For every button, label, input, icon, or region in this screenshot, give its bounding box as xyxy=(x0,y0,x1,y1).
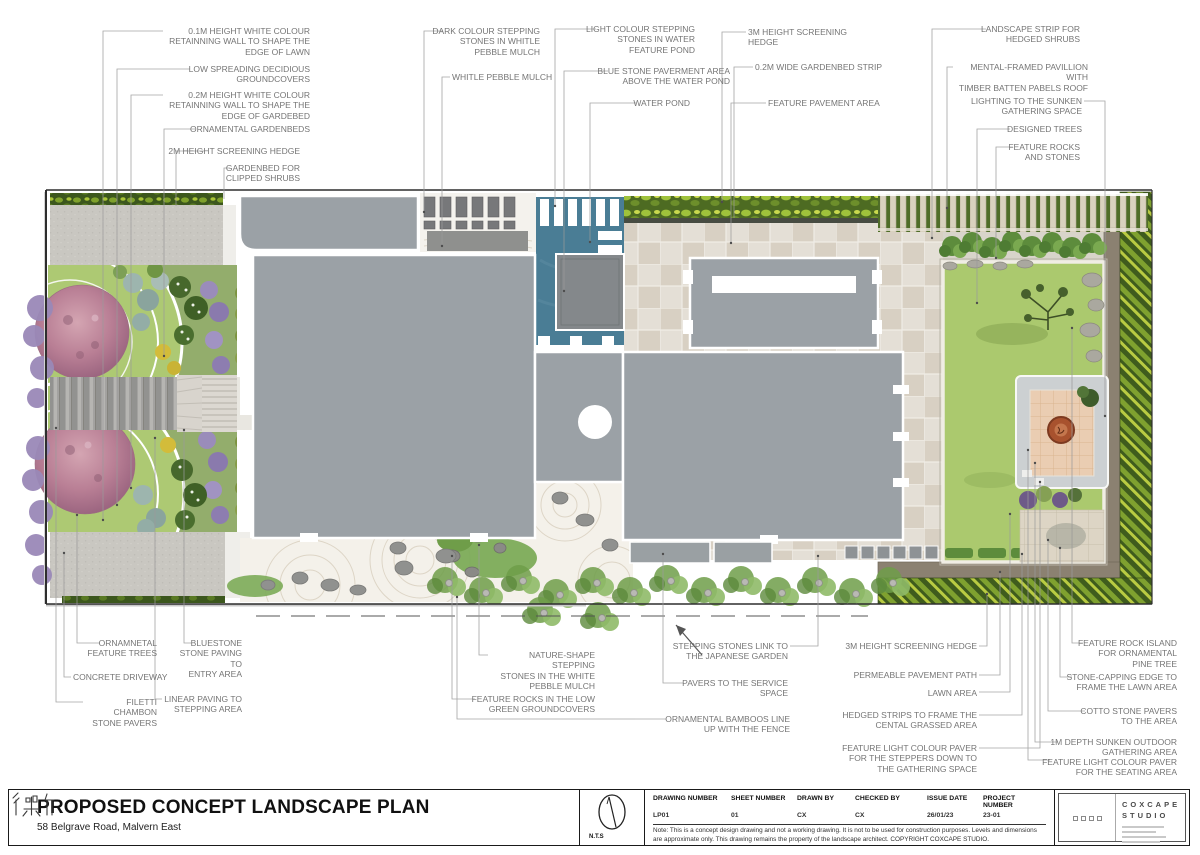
callout-nature-stepping-stones: NATURE-SHAPE STEPPING STONES IN THE WHIT… xyxy=(485,650,595,691)
callout-bamboos-fence: ORNAMENTAL BAMBOOS LINE UP WITH THE FENC… xyxy=(655,714,790,735)
callout-lighting-sunken: LIGHTING TO THE SUNKEN GATHERING SPACE xyxy=(950,96,1082,117)
callout-permeable-path: PERMEABLE PAVEMENT PATH xyxy=(850,670,977,680)
hedge-bottom-left xyxy=(62,596,225,603)
field-label-checked-by: CHECKED BY xyxy=(855,795,927,812)
bluestone-entry-paving xyxy=(50,377,177,430)
callout-sunken-gathering: 1M DEPTH SUNKEN OUTDOOR GATHERING AREA xyxy=(1045,737,1177,758)
callout-ornamental-feature-trees: ORNAMNETAL FEATURE TREES xyxy=(85,638,157,659)
field-label-drawing-number: DRAWING NUMBER xyxy=(653,795,731,812)
callout-feature-rocks-groundcovers: FEATURE ROCKS IN THE LOW GREEN GROUNDCOV… xyxy=(460,694,595,715)
garage-block xyxy=(240,196,418,250)
studio-name-line2: STUDIO xyxy=(1122,810,1185,821)
callout-paver-seating: FEATURE LIGHT COLOUR PAVER FOR THE SEATI… xyxy=(1035,757,1177,778)
callout-3m-screening-hedge-bottom: 3M HEIGHT SCREENING HEDGE xyxy=(845,641,977,651)
rear-garage-block xyxy=(690,258,878,348)
callout-cotto-pavers: COTTO STONE PAVERS TO THE AREA xyxy=(1065,706,1177,727)
callout-stepping-stones-japanese: STEPPING STONES LINK TO THE JAPANESE GAR… xyxy=(663,641,788,662)
callout-light-stepping-stones: LIGHT COLOUR STEPPING STONES IN WATER FE… xyxy=(585,24,695,55)
driveway-upper xyxy=(50,205,223,265)
field-value-drawn-by: CX xyxy=(797,812,855,822)
callout-pavilion: MENTAL-FRAMED PAVILLION WITH TIMBER BATT… xyxy=(953,62,1088,93)
drawing-info-table: DRAWING NUMBER SHEET NUMBER DRAWN BY CHE… xyxy=(644,790,1054,845)
callout-01m-retaining-wall: 0.1M HEIGHT WHITE COLOUR RETAINNING WALL… xyxy=(160,26,310,57)
callout-rock-island: FEATURE ROCK ISLAND FOR ORNAMENTAL PINE … xyxy=(1075,638,1177,669)
callout-linear-paving: LINEAR PAVING TO STEPPING AREA xyxy=(160,694,242,715)
callout-designed-trees: DESIGNED TREES xyxy=(980,124,1082,134)
driveway-lower xyxy=(50,532,225,598)
service-space-pavers xyxy=(630,542,710,563)
callout-feature-rocks-stones: FEATURE ROCKS AND STONES xyxy=(998,142,1080,163)
field-label-project-number: PROJECT NUMBER xyxy=(983,795,1045,812)
copyright-note: Note: This is a concept design drawing a… xyxy=(653,824,1046,845)
logo-small-characters xyxy=(1073,816,1102,821)
studio-contact-lines xyxy=(1122,826,1185,843)
callout-bluestone-entry: BLUESTONE STONE PAVING TO ENTRY AREA xyxy=(170,638,242,679)
studio-logo-glyphs-icon xyxy=(9,790,55,818)
project-address: 58 Belgrave Road, Malvern East xyxy=(37,822,579,833)
callout-feature-pavement: FEATURE PAVEMENT AREA xyxy=(768,98,888,108)
callout-white-pebble-mulch: WHITLE PEBBLE MULCH xyxy=(452,72,572,82)
field-value-drawing-number: LP01 xyxy=(653,812,731,822)
courtyard-feature-circle xyxy=(578,405,612,439)
sunken-gathering-area xyxy=(1016,376,1108,488)
scale-label: N.T.S xyxy=(589,834,604,840)
front-garden-zone xyxy=(0,193,253,606)
callout-02m-retaining-wall: 0.2M HEIGHT WHITE COLOUR RETAINNING WALL… xyxy=(160,90,310,121)
callout-3m-screening-hedge-top: 3M HEIGHT SCREENING HEDGE xyxy=(748,27,878,48)
callout-groundcovers: LOW SPREADING DECIDIOUS GROUNDCOVERS xyxy=(160,64,310,85)
page-title: PROPOSED CONCEPT LANDSCAPE PLAN xyxy=(37,797,579,819)
field-value-checked-by: CX xyxy=(855,812,927,822)
callout-gardenbed-strip: 0.2M WIDE GARDENBED STRIP xyxy=(755,62,890,72)
callout-water-pond: WATER POND xyxy=(590,98,690,108)
field-value-sheet-number: 01 xyxy=(731,812,797,822)
title-section: PROPOSED CONCEPT LANDSCAPE PLAN 58 Belgr… xyxy=(9,790,579,845)
white-pebble-mulch-court xyxy=(420,193,536,252)
callout-pavers-service: PAVERS TO THE SERVICE SPACE xyxy=(673,678,788,699)
field-label-drawn-by: DRAWN BY xyxy=(797,795,855,812)
screening-hedge-right xyxy=(1120,192,1152,604)
gardenbed-strip xyxy=(624,218,878,223)
callout-hedged-strips: HEDGED STRIPS TO FRAME THE CENTAL GRASSE… xyxy=(830,710,977,731)
callout-bluestone-pavement-pond: BLUE STONE PAVERMENT AREA ABOVE THE WATE… xyxy=(565,66,730,87)
field-value-issue-date: 26/01/23 xyxy=(927,812,983,822)
screening-hedge-bottom xyxy=(878,578,1152,604)
callout-landscape-strip: LANDSCAPE STRIP FOR HEDGED SHRUBS xyxy=(950,24,1080,45)
bluestone-pond-platform xyxy=(556,254,624,330)
callout-gardenbed-clipped-shrubs: GARDENBED FOR CLIPPED SHRUBS xyxy=(150,163,300,184)
pavilion-timber-batten-roof xyxy=(878,193,1148,232)
callout-paver-steppers: FEATURE LIGHT COLOUR PAVER FOR THE STEPP… xyxy=(830,743,977,774)
callout-2m-screening-hedge: 2M HEIGHT SCREENING HEDGE xyxy=(150,146,300,156)
callout-dark-stepping-stones: DARK COLOUR STEPPING STONES IN WHITLE PE… xyxy=(430,26,540,57)
title-block: PROPOSED CONCEPT LANDSCAPE PLAN 58 Belgr… xyxy=(8,789,1190,846)
north-arrow-icon xyxy=(581,792,643,836)
screening-hedge-3m xyxy=(624,196,878,218)
water-pond xyxy=(536,197,624,346)
callout-ornamental-gardenbeds: ORNAMENTAL GARDENBEDS xyxy=(160,124,310,134)
field-label-sheet-number: SHEET NUMBER xyxy=(731,795,797,812)
north-scale-section: N.T.S xyxy=(579,790,644,845)
hedged-strips xyxy=(945,548,1031,558)
callout-stone-capping: STONE-CAPPING EDGE TO FRAME THE LAWN ARE… xyxy=(1055,672,1177,693)
field-label-issue-date: ISSUE DATE xyxy=(927,795,983,812)
studio-name-line1: COXCAPE xyxy=(1122,799,1185,810)
studio-logo-section: COXCAPE STUDIO xyxy=(1054,790,1189,845)
screening-hedge-top-left xyxy=(50,193,223,207)
landscape-plan-sheet: 0.1M HEIGHT WHITE COLOUR RETAINNING WALL… xyxy=(0,0,1200,855)
field-value-project-number: 23-01 xyxy=(983,812,1045,822)
callout-filetti-pavers: FILETTI CHAMBON STONE PAVERS xyxy=(83,697,157,728)
callout-lawn-area: LAWN AREA xyxy=(895,688,977,698)
